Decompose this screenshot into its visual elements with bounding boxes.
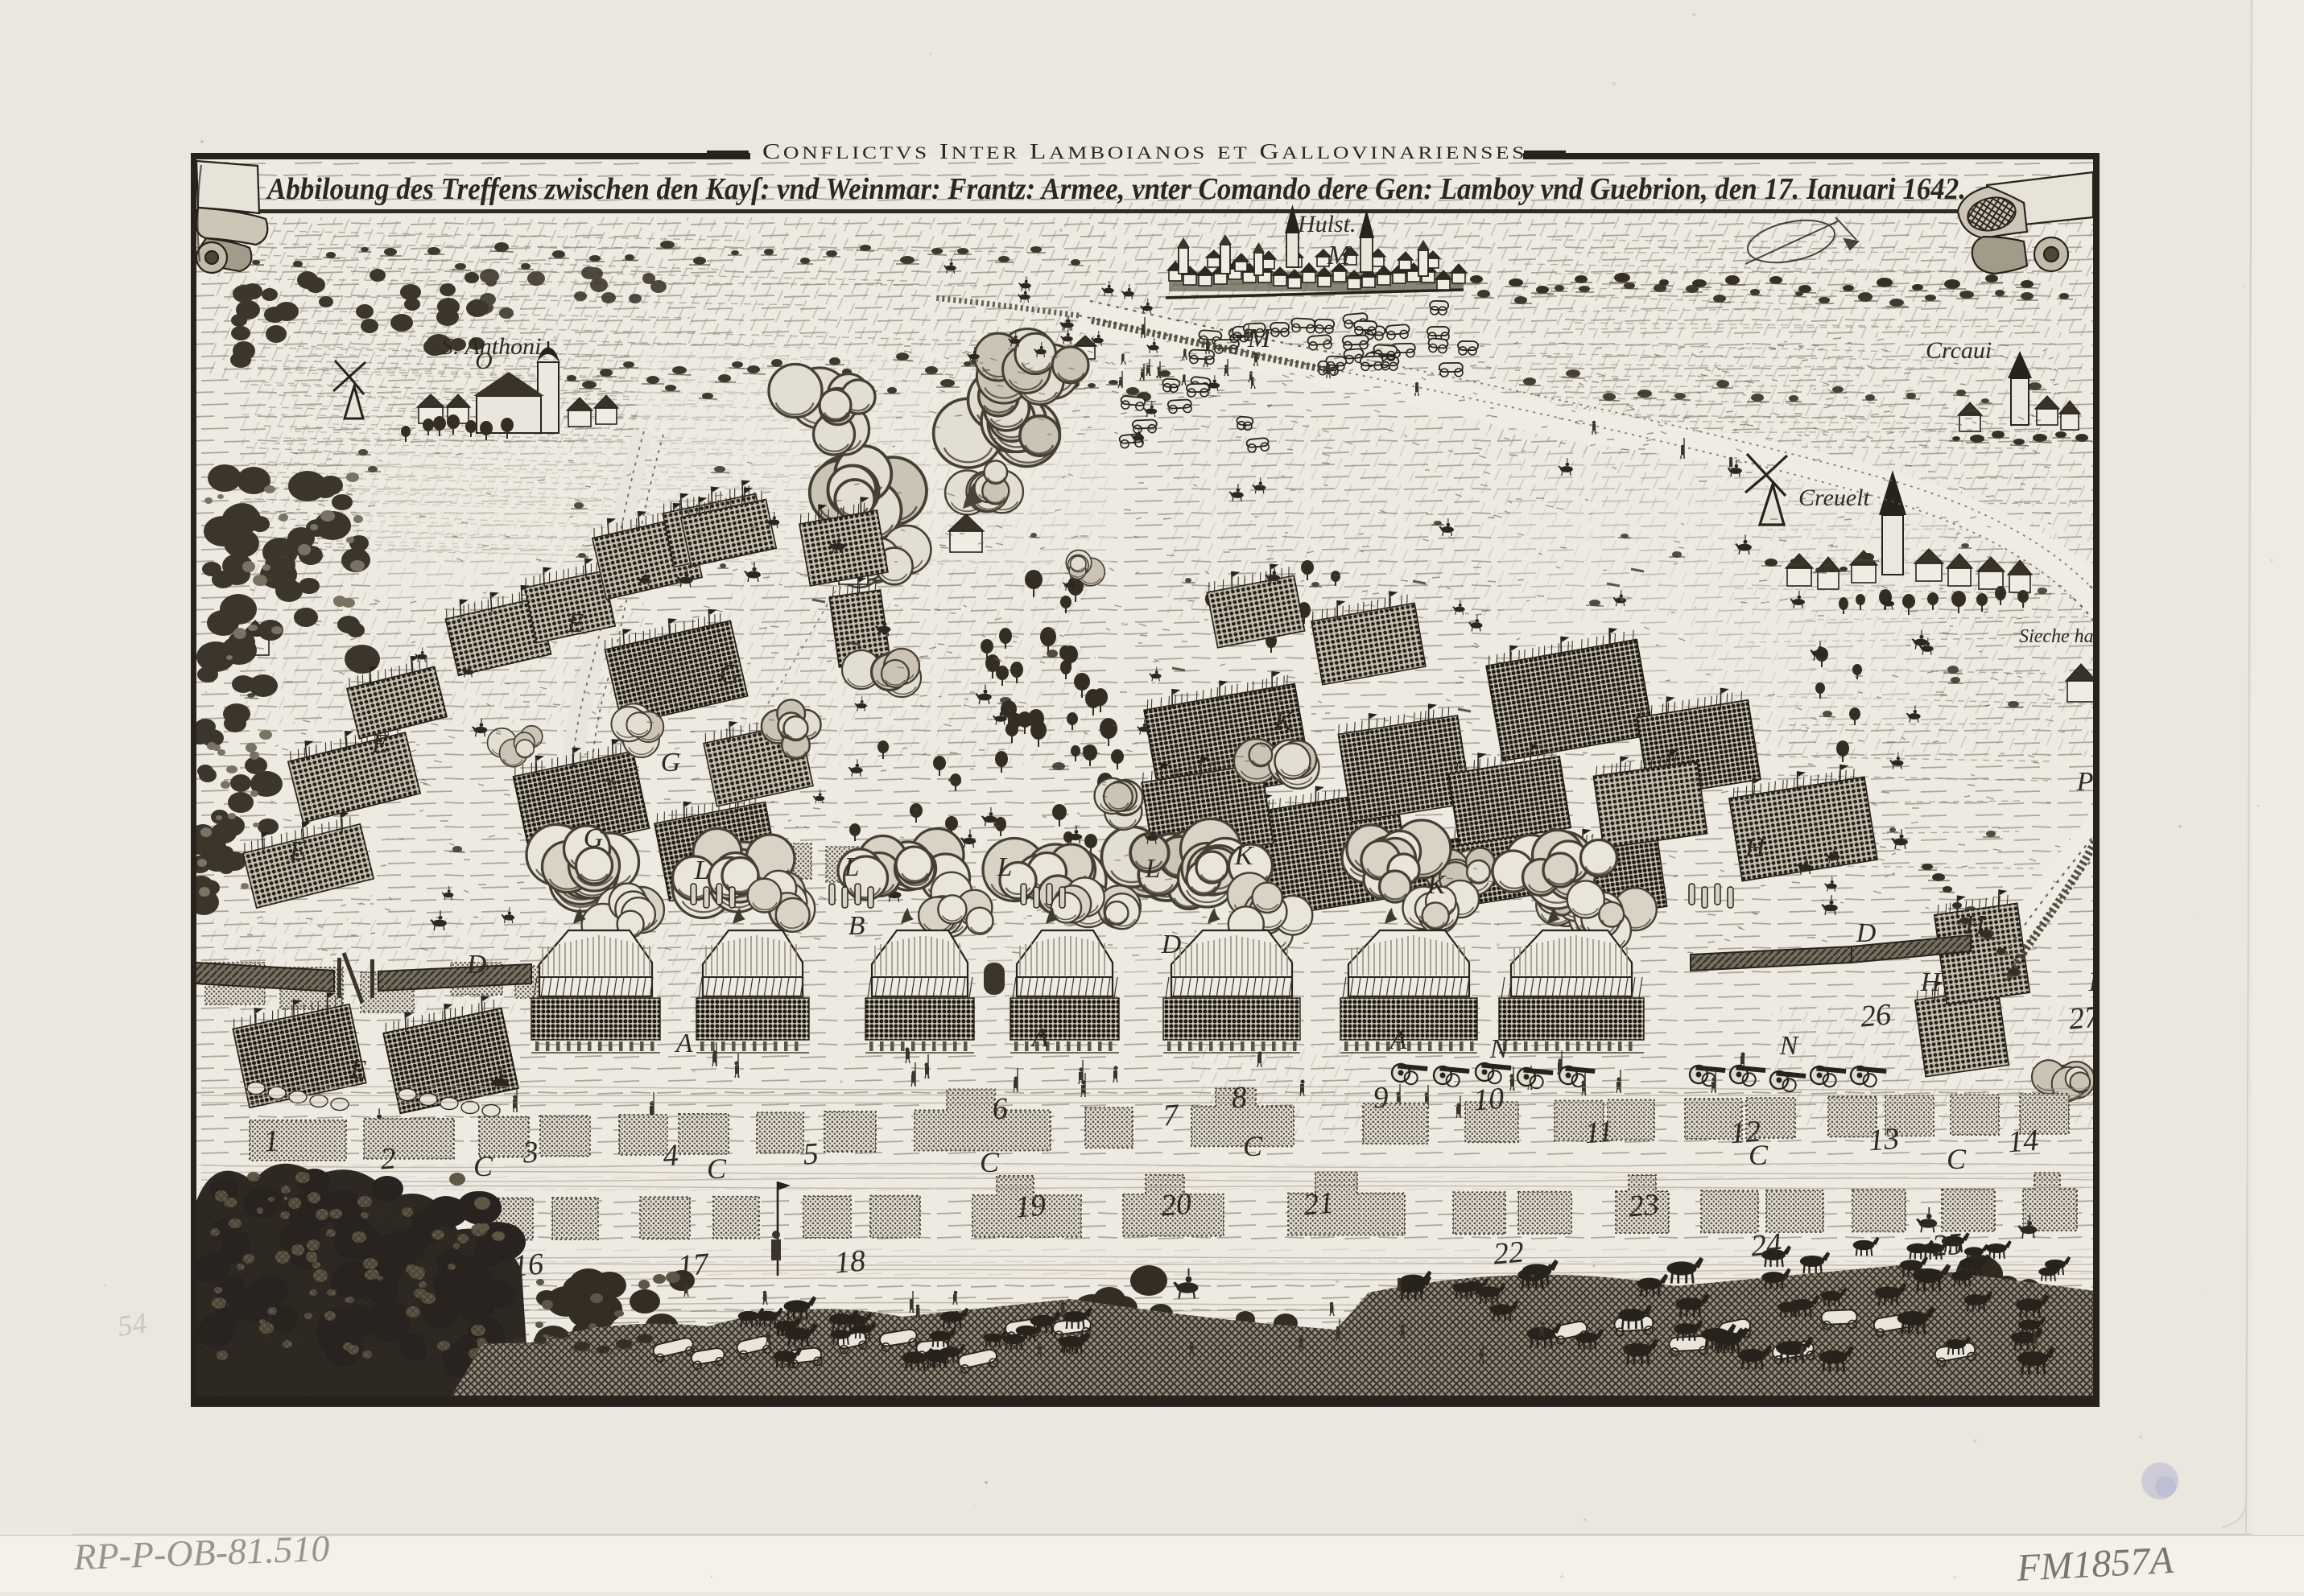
svg-text:2: 2 [379,1141,397,1176]
svg-text:13: 13 [1868,1122,1901,1158]
svg-text:E: E [567,608,584,638]
svg-text:8: 8 [1230,1080,1248,1115]
svg-text:6: 6 [991,1091,1009,1126]
svg-text:C: C [707,1153,727,1185]
svg-text:17: 17 [676,1247,712,1283]
svg-text:FM1857A: FM1857A [2015,1539,2175,1590]
svg-text:G: G [584,823,604,853]
svg-text:L: L [844,852,860,882]
svg-text:N: N [1489,1034,1510,1064]
svg-text:E: E [371,729,389,759]
svg-text:20: 20 [1159,1186,1193,1223]
svg-text:CONFLICTVS INTER LAMBOIANOS ET: CONFLICTVS INTER LAMBOIANOS ET GALLOVINA… [762,139,1527,163]
svg-text:Crcaui: Crcaui [1926,337,1992,364]
svg-text:K: K [1234,841,1255,871]
svg-text:16: 16 [511,1247,545,1283]
svg-text:E: E [349,1055,367,1085]
svg-text:K: K [1274,707,1294,736]
svg-text:A: A [1030,1023,1049,1053]
svg-text:25: 25 [1930,1227,1964,1263]
svg-text:9: 9 [1372,1080,1389,1115]
svg-text:54: 54 [116,1306,149,1342]
svg-text:A: A [1389,1025,1407,1055]
svg-text:L: L [1145,854,1161,884]
svg-text:C: C [1749,1139,1769,1171]
svg-text:A: A [675,1029,693,1058]
svg-text:N: N [1779,1031,1800,1061]
svg-text:B: B [849,911,865,941]
svg-text:19: 19 [1014,1188,1047,1224]
svg-text:1: 1 [262,1124,280,1158]
svg-text:D: D [1161,930,1182,959]
svg-text:26: 26 [1859,997,1893,1033]
svg-text:15: 15 [370,1199,403,1235]
svg-text:C: C [980,1146,1000,1178]
svg-text:11: 11 [1583,1115,1614,1150]
svg-text:C: C [473,1150,493,1182]
svg-text:K: K [1427,870,1447,900]
svg-text:4: 4 [662,1138,679,1173]
svg-text:10: 10 [1472,1082,1505,1118]
svg-text:G: G [720,659,740,689]
svg-text:Abbiloung des Treffens zwische: Abbiloung des Treffens zwischen den Kayſ… [266,172,1966,206]
svg-text:C: C [1947,1143,1967,1175]
svg-text:D: D [466,950,487,979]
svg-text:3: 3 [521,1135,539,1169]
svg-text:M: M [1247,324,1272,353]
svg-text:23: 23 [1627,1187,1661,1223]
svg-text:H: H [1964,910,1987,940]
svg-text:M: M [1327,241,1352,270]
svg-text:22: 22 [1492,1235,1526,1271]
svg-text:P: P [2076,767,2094,797]
svg-text:24: 24 [1749,1227,1783,1263]
svg-text:L: L [694,856,710,885]
svg-text:14: 14 [2007,1124,2040,1160]
svg-text:H: H [1920,967,1943,997]
svg-text:18: 18 [833,1243,867,1280]
svg-text:H: H [1745,833,1767,863]
svg-text:Hulst.: Hulst. [1297,211,1356,237]
svg-text:L: L [997,852,1013,882]
svg-text:E: E [289,836,307,866]
svg-text:C: C [1243,1130,1263,1162]
svg-text:S. Anthoni: S. Anthoni [441,333,541,360]
svg-text:21: 21 [1302,1186,1336,1222]
svg-text:D: D [1856,918,1877,948]
svg-text:Creuelt: Creuelt [1798,485,1871,511]
svg-text:5: 5 [802,1136,820,1171]
svg-text:G: G [661,748,681,777]
